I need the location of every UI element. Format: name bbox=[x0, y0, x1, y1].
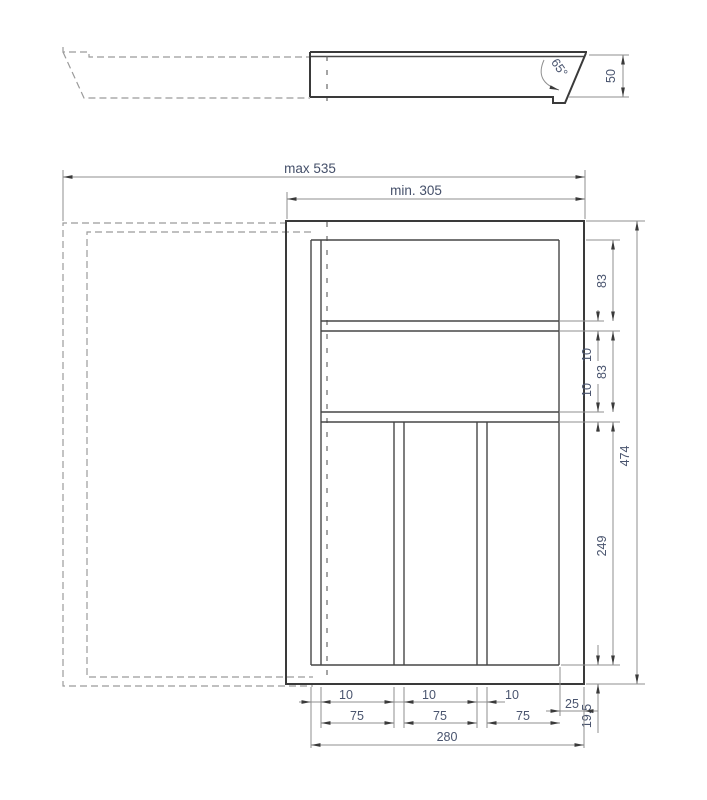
dim-depth-474: 474 bbox=[618, 446, 632, 467]
section-dimensions: 50 65° bbox=[541, 55, 629, 97]
dim-min-width: min. 305 bbox=[390, 183, 442, 198]
depth-dimensions: 83 10 83 10 249 474 19,5 bbox=[559, 221, 645, 733]
dim-wall-19-5: 19,5 bbox=[580, 704, 594, 728]
vertical-divider-2 bbox=[477, 422, 487, 665]
dim-divider-10-top: 10 bbox=[580, 348, 594, 362]
width-dimensions: max 535 min. 305 bbox=[63, 161, 585, 221]
technical-drawing-page: 50 65° bbox=[0, 0, 707, 800]
dim-divider-10-mid: 10 bbox=[580, 383, 594, 397]
tray-body bbox=[286, 221, 584, 684]
dim-inner-width-280: 280 bbox=[437, 730, 458, 744]
dim-slot-divider-2: 10 bbox=[422, 688, 436, 702]
dim-max-width: max 535 bbox=[284, 161, 336, 176]
section-dashed-profile bbox=[63, 47, 310, 98]
dim-slot-divider-1: 10 bbox=[339, 688, 353, 702]
dim-slot-width-2: 75 bbox=[433, 709, 447, 723]
vertical-divider-1 bbox=[394, 422, 404, 665]
section-solid-body bbox=[310, 52, 587, 103]
dim-slot-width-3: 75 bbox=[516, 709, 530, 723]
dim-slot-width-1: 75 bbox=[350, 709, 364, 723]
dim-slot-divider-3: 10 bbox=[505, 688, 519, 702]
dim-wall-25: 25 bbox=[565, 697, 579, 711]
cutlery-tray-drawing: 50 65° bbox=[0, 0, 707, 800]
horizontal-divider-1 bbox=[321, 321, 559, 331]
dim-depth-83-mid: 83 bbox=[595, 365, 609, 379]
section-view: 50 65° bbox=[63, 47, 629, 103]
plan-view: max 535 min. 305 83 10 83 10 24 bbox=[63, 161, 645, 748]
dim-depth-83-top: 83 bbox=[595, 274, 609, 288]
dim-angle-65: 65° bbox=[548, 56, 570, 80]
slot-dimensions: 10 10 10 75 75 75 25 280 bbox=[299, 667, 598, 748]
tray-outline bbox=[286, 221, 584, 684]
dim-height-50: 50 bbox=[604, 69, 618, 83]
dim-depth-249: 249 bbox=[595, 536, 609, 557]
horizontal-divider-2 bbox=[321, 412, 559, 422]
front-bevel-edge bbox=[310, 53, 586, 103]
drawer-max-outline bbox=[63, 223, 313, 686]
